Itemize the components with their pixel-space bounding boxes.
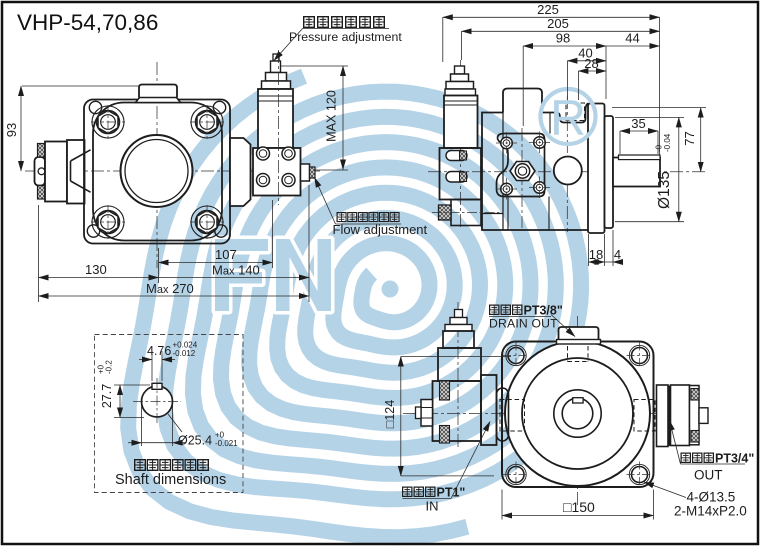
svg-text:PT1": PT1" <box>437 486 466 500</box>
svg-text:Max 270: Max 270 <box>146 281 194 296</box>
svg-text:205: 205 <box>547 16 569 31</box>
svg-text:-0.04: -0.04 <box>663 133 672 152</box>
svg-text:4: 4 <box>614 247 621 262</box>
svg-text:□124: □124 <box>383 400 397 428</box>
svg-text:PT3/8": PT3/8" <box>524 304 563 318</box>
svg-text:□150: □150 <box>563 499 595 515</box>
svg-text:Pressure adjustment: Pressure adjustment <box>289 30 402 44</box>
svg-text:PT3/4": PT3/4" <box>715 452 754 466</box>
svg-text:35: 35 <box>631 116 645 131</box>
svg-text:VHP-54,70,86: VHP-54,70,86 <box>17 10 158 35</box>
svg-text:Max 140: Max 140 <box>212 263 260 278</box>
svg-text:98: 98 <box>556 31 570 46</box>
svg-text:Shaft dimensions: Shaft dimensions <box>115 472 226 488</box>
svg-text:107: 107 <box>215 247 237 262</box>
svg-text:Flow adjustment: Flow adjustment <box>333 222 428 237</box>
svg-text:-0.012: -0.012 <box>173 349 196 358</box>
svg-text:DRAIN OUT: DRAIN OUT <box>489 317 558 331</box>
svg-text:27.7: 27.7 <box>100 384 114 408</box>
svg-text:-0.021: -0.021 <box>215 439 238 448</box>
svg-text:4.76: 4.76 <box>147 344 171 358</box>
svg-text:130: 130 <box>85 262 107 277</box>
svg-text:93: 93 <box>4 123 19 137</box>
svg-text:28: 28 <box>584 56 598 71</box>
svg-text:-0.2: -0.2 <box>105 360 114 374</box>
svg-text:Ø135: Ø135 <box>656 171 673 209</box>
svg-text:4-Ø13.5: 4-Ø13.5 <box>687 490 736 505</box>
svg-text:OUT: OUT <box>694 468 723 483</box>
svg-text:77: 77 <box>682 131 697 145</box>
svg-text:18: 18 <box>589 247 603 262</box>
svg-text:44: 44 <box>625 31 639 46</box>
svg-text:MAX 120: MAX 120 <box>325 90 339 142</box>
svg-text:IN: IN <box>426 499 439 514</box>
svg-text:Ø25.4: Ø25.4 <box>178 434 212 448</box>
svg-text:2-M14xP2.0: 2-M14xP2.0 <box>674 504 747 519</box>
svg-text:R: R <box>550 90 586 146</box>
svg-text:225: 225 <box>537 2 559 17</box>
